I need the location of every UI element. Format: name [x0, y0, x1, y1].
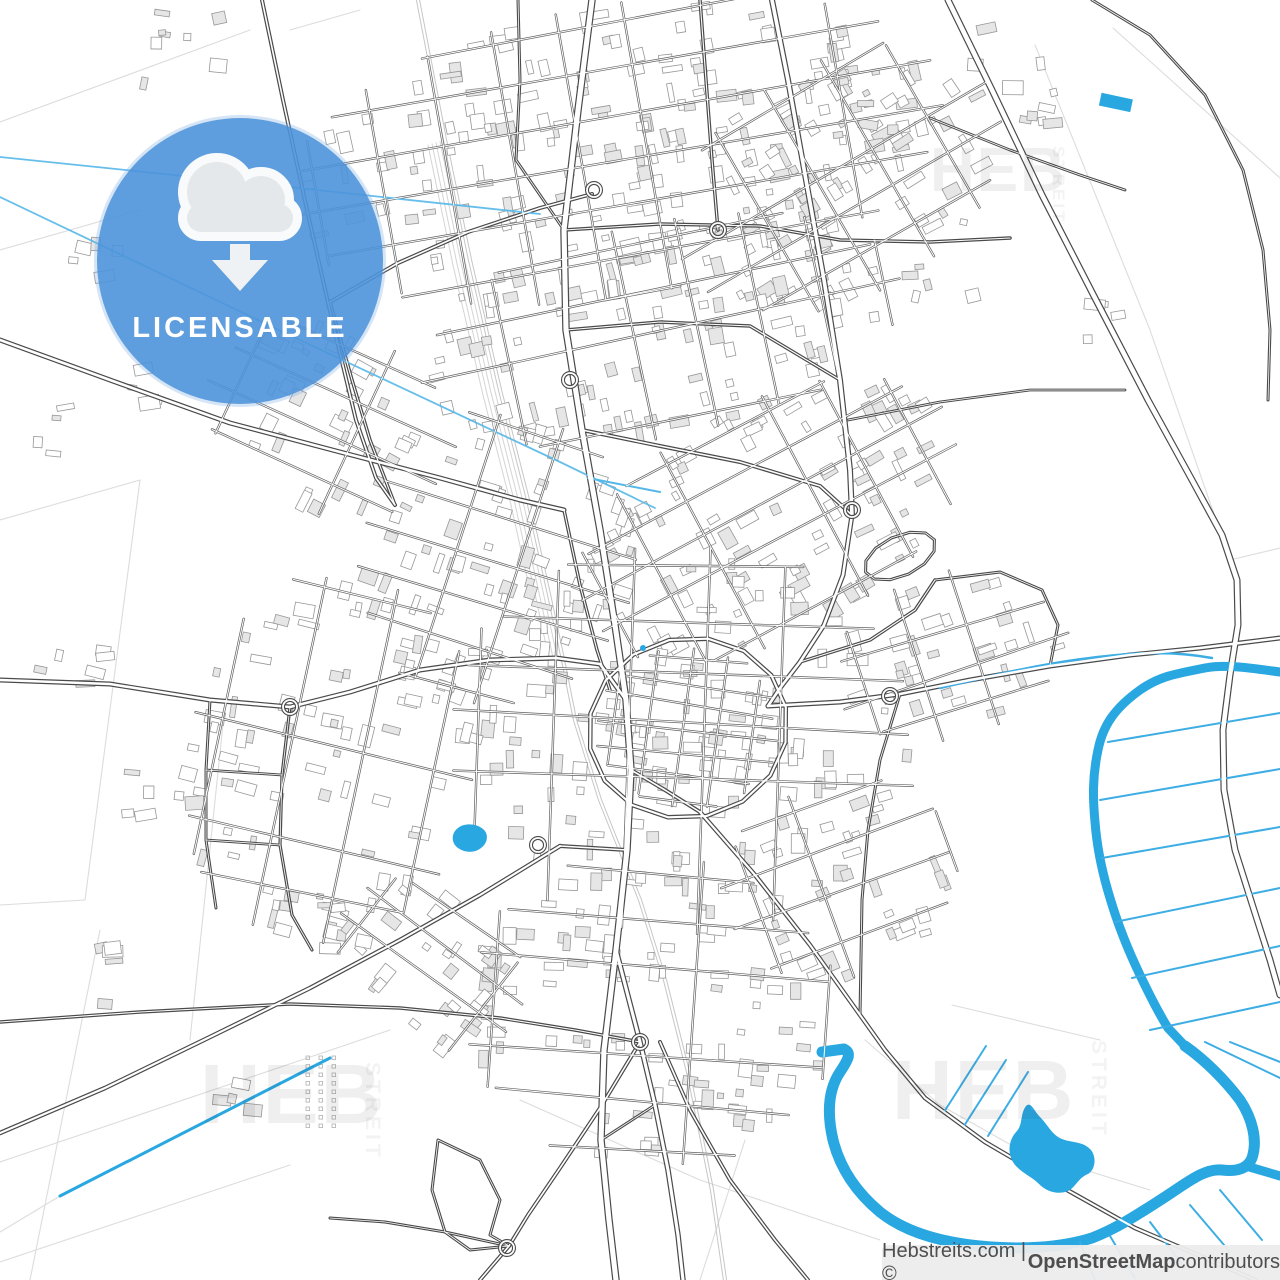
attribution-suffix: contributors	[1176, 1251, 1280, 1274]
badge-label: LICENSABLE	[97, 314, 383, 343]
attribution-bar: Hebstreits.com | © OpenStreetMap contrib…	[882, 1245, 1280, 1280]
attribution-osm-link[interactable]: OpenStreetMap	[1028, 1251, 1176, 1274]
map-preview: HEB STREIT HEB STREIT HEB STREIT LICENSA…	[0, 0, 1280, 1280]
download-arrow-icon	[212, 244, 268, 291]
cloud-download-icon	[165, 140, 315, 295]
licensable-badge: LICENSABLE	[97, 118, 383, 404]
attribution-site-link[interactable]: Hebstreits.com | ©	[882, 1240, 1028, 1280]
